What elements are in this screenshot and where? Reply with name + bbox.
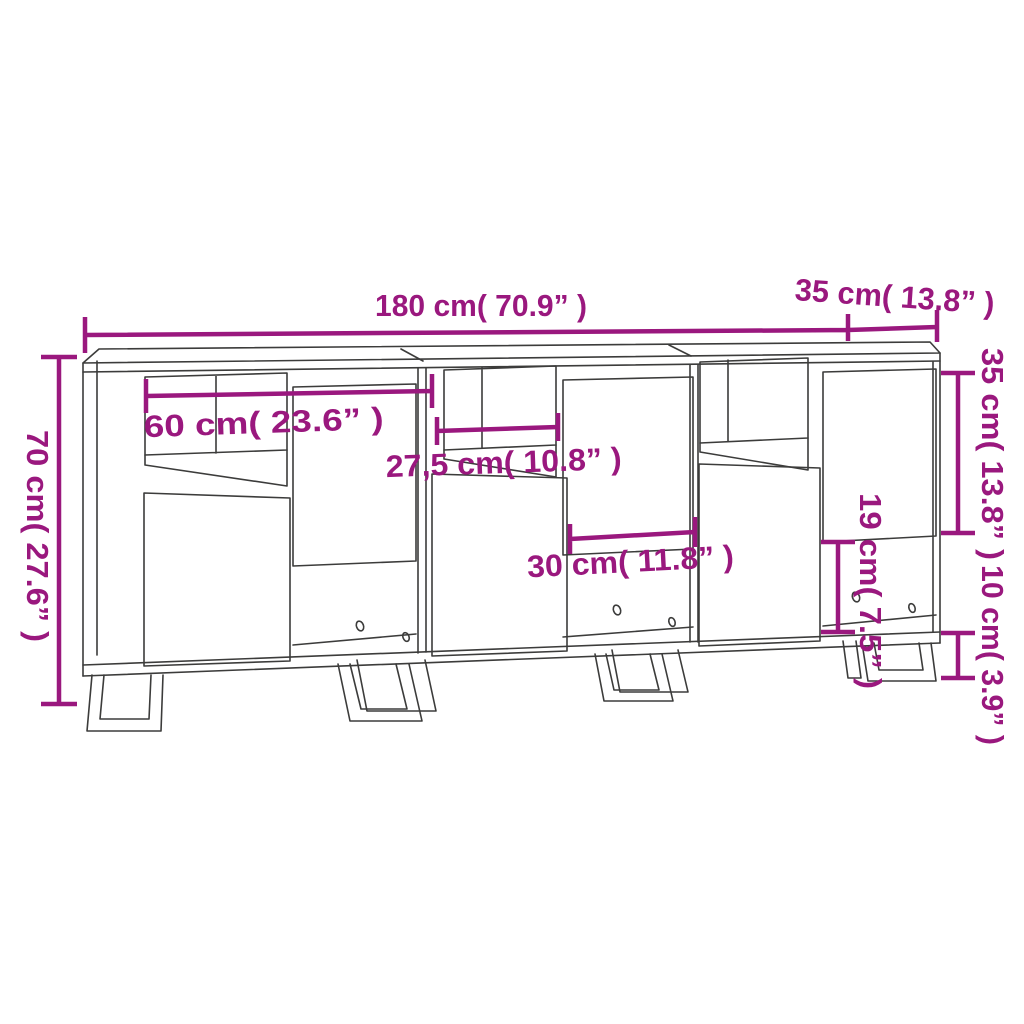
dim-top-depth-label: 35 cm( 13.8” ) bbox=[794, 272, 996, 321]
leg-group-middle-right bbox=[595, 650, 688, 701]
dim-shelf-width-label: 27,5 cm( 10.8” ) bbox=[385, 441, 622, 484]
leg-left bbox=[87, 675, 163, 731]
unit3-screw-hole bbox=[908, 603, 917, 614]
dim-open-space-label: 19 cm( 7.5” ) bbox=[853, 493, 888, 689]
dim-total-width-label: 180 cm( 70.9” ) bbox=[375, 288, 587, 323]
unit1-left-door bbox=[144, 493, 290, 666]
dim-shelf-width-line bbox=[437, 413, 558, 445]
dim-door-height-line bbox=[941, 373, 975, 533]
bottom-edge bbox=[83, 632, 940, 676]
unit1-screw-hole bbox=[402, 632, 411, 643]
dim-leg-height-line bbox=[941, 633, 975, 678]
sideboard-dimension-diagram: 180 cm( 70.9” ) 35 cm( 13.8” ) 70 cm( 27… bbox=[0, 0, 1024, 1024]
unit2-screw-hole bbox=[612, 604, 622, 616]
unit2-shelf-opening bbox=[444, 366, 556, 450]
dim-open-space-line bbox=[821, 542, 855, 632]
sideboard-drawing bbox=[83, 342, 940, 731]
dim-door-height-label: 35 cm( 13.8” ) bbox=[975, 348, 1010, 560]
dim-total-height-label: 70 cm( 27.6” ) bbox=[20, 430, 55, 642]
unit2-screw-hole bbox=[668, 617, 677, 628]
unit1-screw-hole bbox=[355, 620, 365, 632]
leg-group-middle-left bbox=[338, 660, 436, 721]
unit1-shelf-front bbox=[145, 450, 287, 486]
unit2-open-compartment-floor bbox=[563, 627, 693, 637]
left-side-panel bbox=[83, 361, 97, 676]
dim-unit-width-label: 60 cm( 23.6” ) bbox=[143, 401, 384, 444]
dim-leg-height-label: 10 cm( 3.9” ) bbox=[975, 565, 1010, 745]
unit1-open-compartment-floor bbox=[293, 634, 416, 645]
unit3-shelf-opening bbox=[700, 358, 808, 443]
diagram-canvas: 180 cm( 70.9” ) 35 cm( 13.8” ) 70 cm( 27… bbox=[0, 0, 1024, 1024]
dim-door-width-label: 30 cm( 11.8” ) bbox=[526, 539, 735, 585]
top-panel bbox=[83, 342, 940, 363]
top-panel-front-edge bbox=[83, 361, 940, 372]
